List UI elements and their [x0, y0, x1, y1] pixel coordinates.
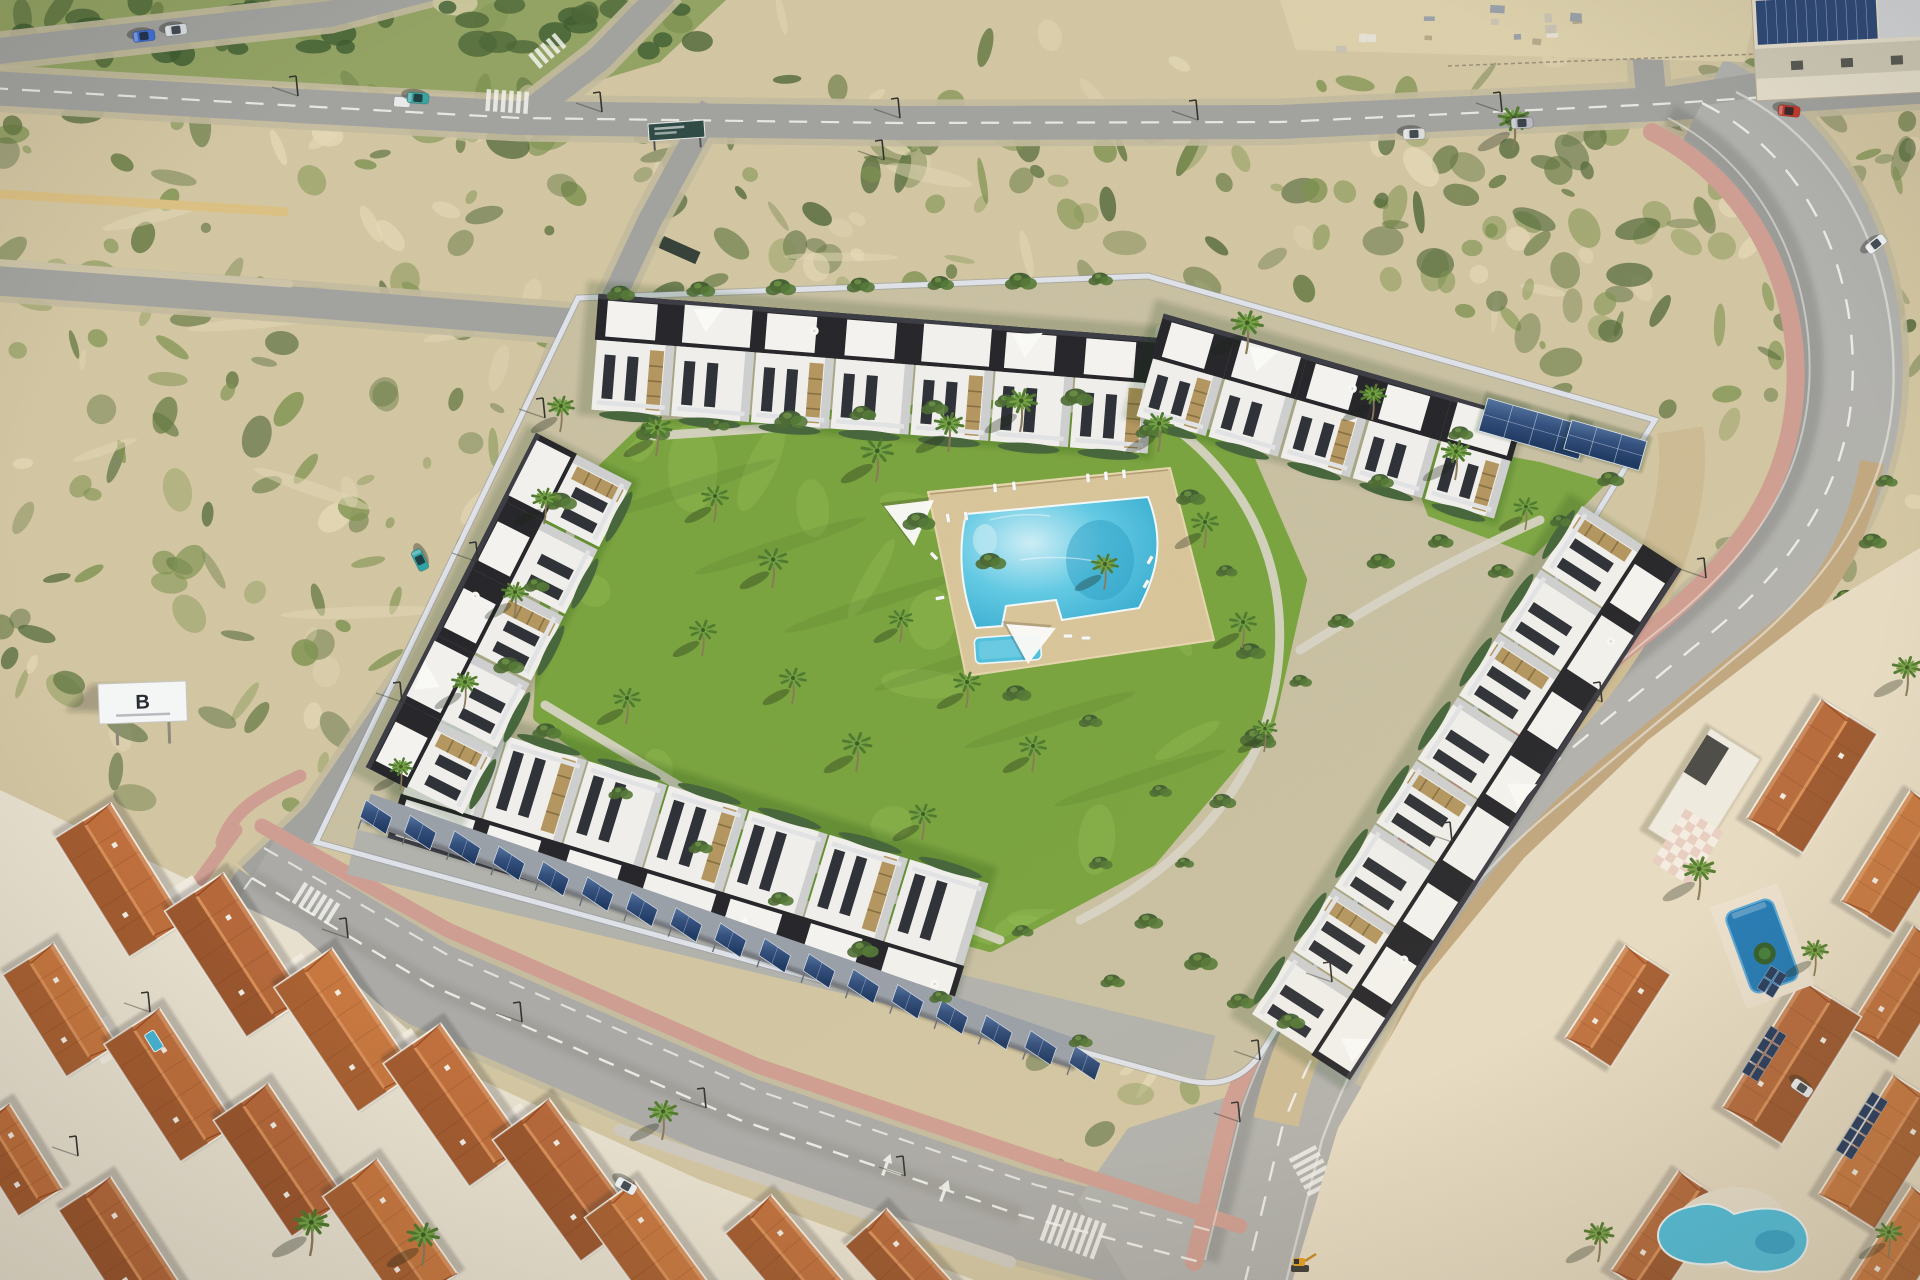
lighting-effects-layer: [0, 0, 1920, 1280]
aerial-screenshot: Aerial render of a modern white resident…: [0, 0, 1920, 1280]
aerial-scene-svg: Aerial render of a modern white resident…: [0, 0, 1920, 1280]
film-grain-overlay: [0, 0, 1920, 1280]
